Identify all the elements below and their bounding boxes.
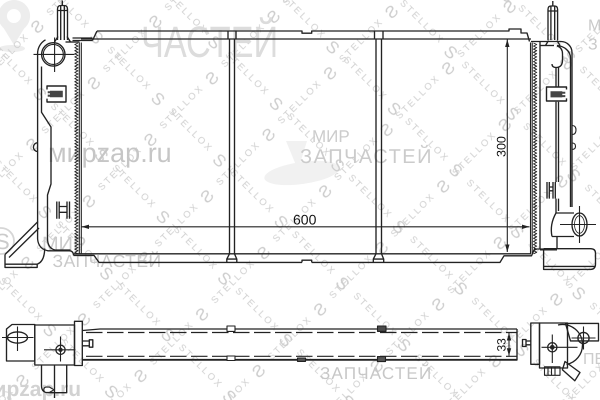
svg-text:мирzар.ru: мирzар.ru (48, 138, 172, 168)
svg-text:33: 33 (495, 338, 509, 352)
svg-text:М: М (588, 18, 600, 35)
svg-text:ПЕ: ПЕ (583, 351, 600, 368)
svg-text:ЗАПЧАСТЕЙ: ЗАПЧАСТЕЙ (320, 363, 432, 383)
svg-text:ЧАСТЕЙ: ЧАСТЕЙ (141, 17, 278, 67)
svg-text:S: S (0, 229, 10, 254)
svg-text:600: 600 (293, 212, 317, 228)
svg-text:МИР: МИР (312, 127, 350, 146)
svg-text:300: 300 (495, 136, 509, 157)
svg-text:ЗАПЧАСТЕЙ: ЗАПЧАСТЕЙ (300, 144, 433, 168)
svg-text:мирzар.ru: мирzар.ru (0, 378, 81, 400)
svg-text:З: З (588, 37, 598, 54)
